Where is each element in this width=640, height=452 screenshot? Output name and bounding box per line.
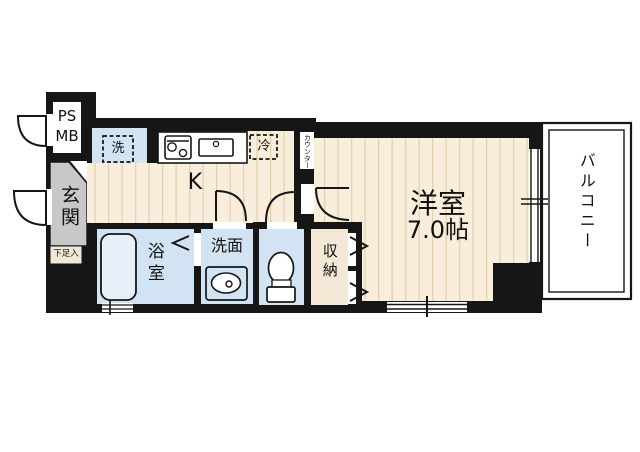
- entrance-label: 玄関: [58, 185, 78, 229]
- counter-label: カウンター: [303, 134, 310, 169]
- laundry-label: 洗: [103, 142, 133, 156]
- main-room-label: 洋室 7.0帖: [377, 189, 499, 244]
- floor-plan-drawing: [0, 0, 640, 452]
- corner-wall: [493, 263, 542, 313]
- bathtub-icon: [101, 234, 136, 300]
- toilet-area: [259, 229, 304, 305]
- washroom-label: 洗面: [200, 238, 254, 255]
- shoe-storage-label: 下足入: [47, 250, 85, 259]
- bathroom-label: 浴室: [144, 242, 162, 286]
- balcony-label: バルコニー: [577, 152, 594, 252]
- kitchen-counter: [158, 132, 247, 163]
- refrigerator-label: 冷: [251, 140, 277, 154]
- main-room-size: 7.0帖: [377, 218, 499, 243]
- ps-label: PS: [52, 106, 82, 126]
- stove-icon: [165, 136, 191, 159]
- kitchen-sink-icon: [199, 139, 233, 156]
- toilet-icon: [267, 253, 295, 303]
- closet-label: 収納: [321, 243, 337, 281]
- mb-label: MB: [52, 126, 82, 146]
- psmb-label: PS MB: [52, 106, 82, 147]
- floor-plan: PS MB 玄関 下足入 洗 K 冷 カウンター 浴室 洗面 収納 洋室 7.0…: [0, 0, 640, 452]
- main-room-name: 洋室: [377, 189, 499, 218]
- kitchen-label: K: [177, 171, 213, 194]
